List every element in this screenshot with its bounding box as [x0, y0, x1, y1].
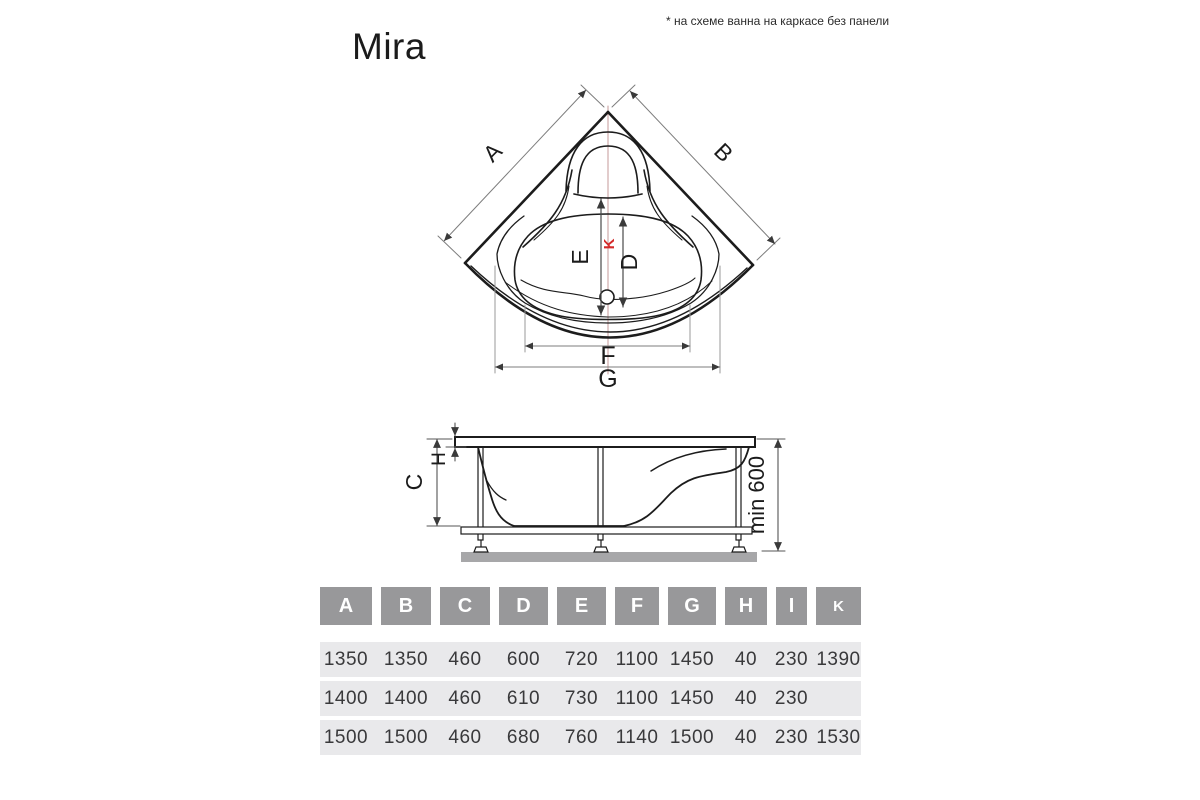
table-row: 1500 1500 460 680 760 1140 1500 40 230 1…	[320, 720, 861, 755]
cell: 680	[499, 720, 548, 755]
cell	[816, 681, 861, 716]
tub-section	[478, 447, 749, 526]
frame-feet	[474, 540, 746, 552]
cell: 1100	[615, 681, 659, 716]
cell: 460	[440, 720, 490, 755]
cell: 1140	[615, 720, 659, 755]
label-e: E	[567, 249, 593, 264]
label-min-height: min 600	[744, 456, 769, 534]
cell: 760	[557, 720, 606, 755]
column-header-f: F	[615, 587, 659, 625]
table-row: 1400 1400 460 610 730 1100 1450 40 230	[320, 681, 861, 716]
cell: 460	[440, 681, 490, 716]
cell: 1400	[320, 681, 372, 716]
cell: 720	[557, 642, 606, 677]
cell: 230	[776, 642, 807, 677]
cell: 1500	[320, 720, 372, 755]
cell: 230	[776, 720, 807, 755]
cell: 1500	[381, 720, 431, 755]
cell: 1530	[816, 720, 861, 755]
cell: 610	[499, 681, 548, 716]
cell: 600	[499, 642, 548, 677]
cell: 460	[440, 642, 490, 677]
spec-sheet: * на схеме ванна на каркасе без панели M…	[0, 0, 1200, 800]
cell: 1350	[381, 642, 431, 677]
drain-circle	[600, 290, 614, 304]
column-header-d: D	[499, 587, 548, 625]
column-header-i: I	[776, 587, 807, 625]
cell: 1100	[615, 642, 659, 677]
table-row: 1350 1350 460 600 720 1100 1450 40 230 1…	[320, 642, 861, 677]
column-header-b: B	[381, 587, 431, 625]
column-header-c: C	[440, 587, 490, 625]
dimension-a	[438, 85, 604, 258]
dimensions-table: A B C D E F G H I K 1350 1350 460 600 72…	[320, 587, 861, 759]
label-b: B	[709, 138, 738, 167]
label-k: K	[601, 238, 618, 249]
cell: 1350	[320, 642, 372, 677]
column-header-e: E	[557, 587, 606, 625]
column-header-a: A	[320, 587, 372, 625]
cell: 40	[725, 720, 767, 755]
cell: 40	[725, 642, 767, 677]
cell: 40	[725, 681, 767, 716]
ground	[461, 552, 757, 562]
cell: 730	[557, 681, 606, 716]
cell: 230	[776, 681, 807, 716]
column-header-k: K	[816, 587, 861, 625]
cell: 1390	[816, 642, 861, 677]
cell: 1500	[668, 720, 716, 755]
dimension-b	[612, 85, 780, 260]
cell: 1450	[668, 642, 716, 677]
label-d: D	[616, 254, 642, 271]
label-g: G	[598, 365, 617, 393]
cell: 1450	[668, 681, 716, 716]
tub-rim	[455, 437, 755, 447]
column-header-g: G	[668, 587, 716, 625]
technical-drawing: A B E K D F	[0, 0, 1200, 580]
label-c: C	[401, 474, 427, 491]
side-view: C H min 600	[401, 423, 785, 562]
top-view: A B E K D F	[438, 85, 780, 393]
column-header-h: H	[725, 587, 767, 625]
label-h: H	[429, 452, 450, 466]
label-a: A	[478, 137, 508, 167]
table-header-row: A B C D E F G H I K	[320, 587, 861, 625]
cell: 1400	[381, 681, 431, 716]
